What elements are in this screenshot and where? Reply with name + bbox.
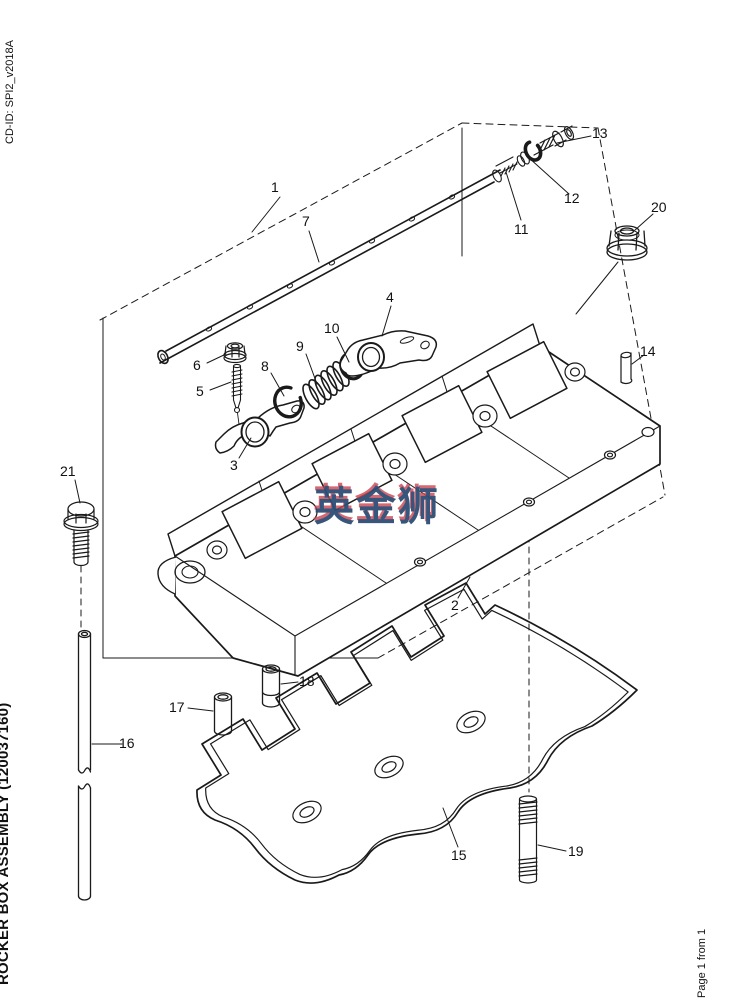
callout-15: 15 [451,848,467,862]
callout-19: 19 [568,844,584,858]
callout-6: 6 [193,358,201,372]
part-14-pin [621,352,632,384]
watermark-text: 英金狮 [314,474,440,532]
page-indicator: Page 1 from 1 [696,929,708,998]
callout-5: 5 [196,384,204,398]
callout-21: 21 [60,464,76,478]
callout-11: 11 [514,222,529,236]
part-4-rocker-arm [340,331,436,376]
callout-13: 13 [592,126,608,140]
callout-2: 2 [451,598,459,612]
callout-14: 14 [640,344,656,358]
callout-18: 18 [299,674,315,688]
part-6-lock-nut [224,343,246,363]
part-17-bush [215,693,232,735]
cd-id-label: CD-ID: SPI2_v2018A [4,40,16,144]
part-19-stud [519,796,537,883]
part-5-adjusting-screw [232,364,242,428]
part-16-push-rod [79,631,91,901]
callout-7: 7 [302,214,310,228]
assembly-title: ROCKER BOX ASSEMBLY (120037160) [0,703,12,985]
part-20-flange-nut [607,226,647,260]
callout-9: 9 [296,339,304,353]
part-3-rocker-arm [216,401,305,453]
callout-12: 12 [564,191,580,205]
callout-4: 4 [386,290,394,304]
callout-1: 1 [271,180,279,194]
callout-16: 16 [119,736,135,750]
callout-20: 20 [651,200,667,214]
parts-catalog-page: 英金狮 1 2 3 4 5 6 7 8 9 10 11 12 13 14 15 … [0,0,735,998]
part-21-flange-bolt [64,502,98,566]
callout-10: 10 [324,321,340,335]
callout-17: 17 [169,700,185,714]
callout-3: 3 [230,458,238,472]
callout-8: 8 [261,359,269,373]
